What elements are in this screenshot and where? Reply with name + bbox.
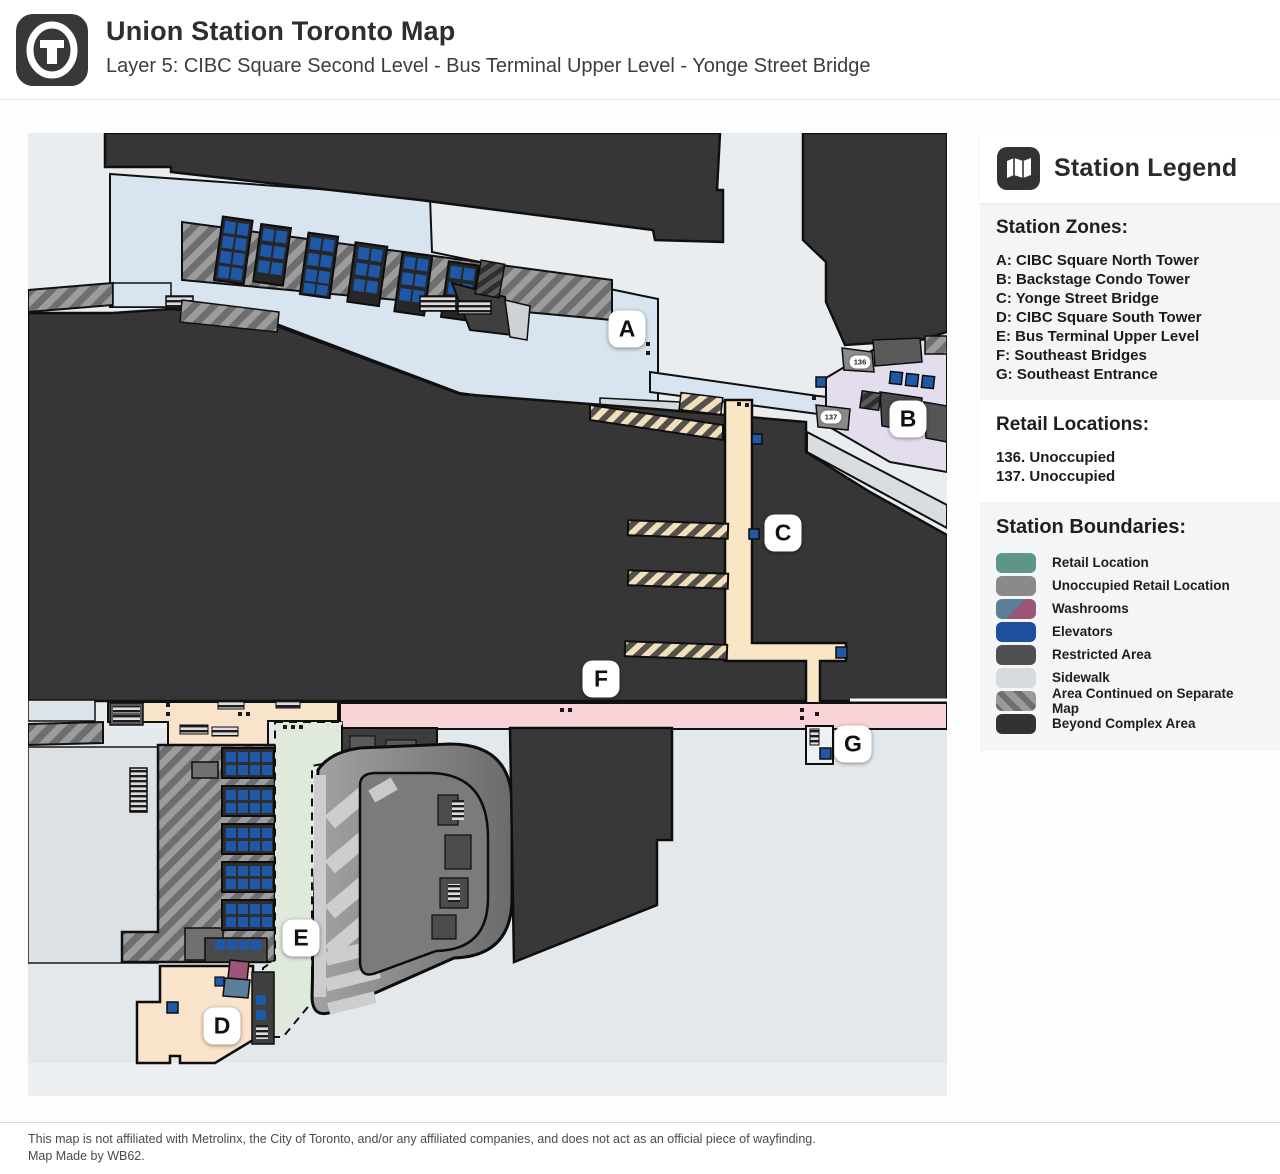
zones-heading: Station Zones: — [996, 217, 1264, 239]
union-station-t-logo-icon — [16, 14, 88, 86]
legend-panel: Station Legend Station Zones: A: CIBC Sq… — [980, 133, 1280, 751]
app-header: Union Station Toronto Map Layer 5: CIBC … — [0, 0, 1280, 100]
legend-retail-item: 137. Unoccupied — [996, 467, 1264, 486]
legend-zones-section: Station Zones: A: CIBC Square North Towe… — [980, 203, 1280, 400]
page-title: Union Station Toronto Map — [106, 16, 871, 47]
boundary-swatch-sidewalk — [996, 668, 1036, 688]
page: Union Station Toronto Map Layer 5: CIBC … — [0, 0, 1280, 1174]
app-footer: This map is not affiliated with Metrolin… — [0, 1122, 1280, 1174]
boundary-swatch-unoccupied-retail-location — [996, 576, 1036, 596]
legend-zone-item: G: Southeast Entrance — [996, 365, 1264, 384]
map-icon — [997, 147, 1040, 190]
elevator-banks-terminal — [222, 748, 274, 930]
legend-boundary-row: Restricted Area — [996, 643, 1264, 666]
legend-retail-item: 136. Unoccupied — [996, 448, 1264, 467]
legend-zone-item: B: Backstage Condo Tower — [996, 270, 1264, 289]
boundary-swatch-elevators — [996, 622, 1036, 642]
retail-heading: Retail Locations: — [996, 414, 1264, 436]
legend-zone-item: A: CIBC Square North Tower — [996, 251, 1264, 270]
page-subtitle: Layer 5: CIBC Square Second Level - Bus … — [106, 55, 871, 78]
legend-header: Station Legend — [980, 133, 1280, 203]
zones-list: A: CIBC Square North TowerB: Backstage C… — [996, 251, 1264, 384]
boundary-label: Elevators — [1052, 624, 1113, 639]
station-map: ABCDEFG136137 — [28, 133, 947, 1096]
boundary-swatch-washrooms — [996, 599, 1036, 619]
boundary-label: Beyond Complex Area — [1052, 716, 1196, 731]
legend-zone-item: E: Bus Terminal Upper Level — [996, 327, 1264, 346]
legend-boundary-row: Unoccupied Retail Location — [996, 574, 1264, 597]
legend-boundary-row: Area Continued on Separate Map — [996, 689, 1264, 712]
boundary-label: Retail Location — [1052, 555, 1149, 570]
legend-boundary-row: Washrooms — [996, 597, 1264, 620]
boundary-swatch-beyond-complex-area — [996, 714, 1036, 734]
legend-boundary-row: Elevators — [996, 620, 1264, 643]
legend-zone-item: F: Southeast Bridges — [996, 346, 1264, 365]
boundary-swatch-restricted-area — [996, 645, 1036, 665]
boundary-label: Unoccupied Retail Location — [1052, 578, 1230, 593]
legend-boundary-row: Retail Location — [996, 551, 1264, 574]
legend-boundaries-section: Station Boundaries: Retail LocationUnocc… — [980, 502, 1280, 751]
legend-zone-item: C: Yonge Street Bridge — [996, 289, 1264, 308]
boundary-label: Sidewalk — [1052, 670, 1110, 685]
boundary-swatch-area-continued-on-separate-map — [996, 691, 1036, 711]
legend-title: Station Legend — [1054, 154, 1237, 183]
boundary-label: Area Continued on Separate Map — [1052, 686, 1264, 716]
boundary-label: Restricted Area — [1052, 647, 1151, 662]
station-map-canvas — [28, 133, 947, 1096]
footer-disclaimer: This map is not affiliated with Metrolin… — [28, 1131, 1280, 1148]
legend-retail-section: Retail Locations: 136. Unoccupied137. Un… — [980, 400, 1280, 502]
boundary-swatch-retail-location — [996, 553, 1036, 573]
retail-list: 136. Unoccupied137. Unoccupied — [996, 448, 1264, 486]
footer-credit: Map Made by WB62. — [28, 1148, 1280, 1165]
legend-zone-item: D: CIBC Square South Tower — [996, 308, 1264, 327]
boundaries-heading: Station Boundaries: — [996, 516, 1264, 539]
boundary-label: Washrooms — [1052, 601, 1129, 616]
boundaries-list: Retail LocationUnoccupied Retail Locatio… — [996, 551, 1264, 735]
